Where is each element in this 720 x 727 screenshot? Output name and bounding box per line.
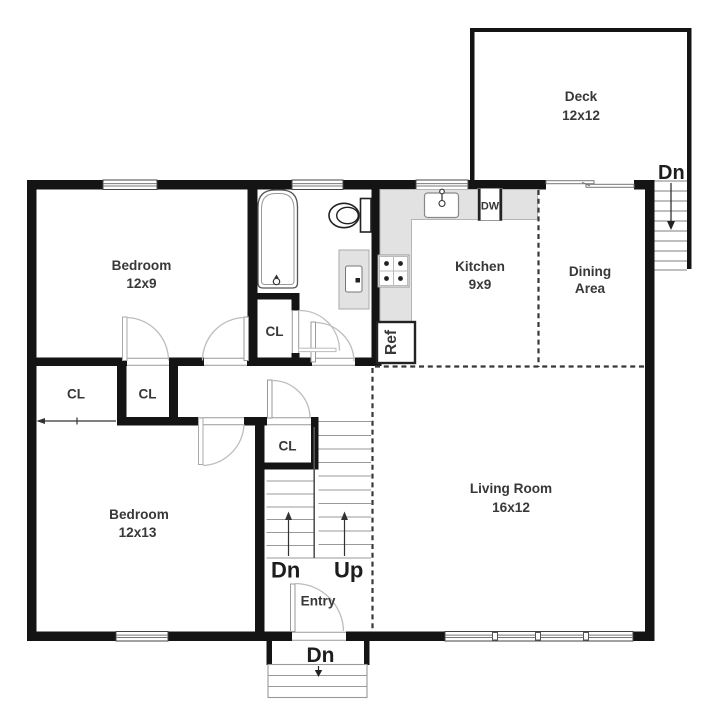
svg-text:9x9: 9x9: [469, 277, 492, 292]
svg-text:Deck: Deck: [565, 89, 598, 104]
svg-text:Ref: Ref: [383, 329, 400, 355]
svg-text:Living Room: Living Room: [470, 481, 552, 496]
svg-text:CL: CL: [279, 439, 297, 454]
svg-text:Dn: Dn: [271, 558, 300, 583]
svg-text:12x9: 12x9: [126, 276, 157, 291]
svg-text:Dn: Dn: [658, 162, 685, 184]
svg-text:Entry: Entry: [301, 594, 336, 609]
svg-text:CL: CL: [67, 387, 85, 402]
svg-text:Area: Area: [575, 281, 606, 296]
svg-text:DW: DW: [481, 201, 500, 213]
svg-text:CL: CL: [139, 387, 157, 402]
svg-text:16x12: 16x12: [492, 500, 530, 515]
svg-text:Bedroom: Bedroom: [112, 258, 172, 273]
svg-text:Dining: Dining: [569, 264, 611, 279]
svg-text:12x12: 12x12: [562, 108, 600, 123]
svg-text:Bedroom: Bedroom: [109, 507, 169, 522]
svg-text:Up: Up: [334, 558, 363, 583]
svg-text:12x13: 12x13: [119, 525, 157, 540]
svg-text:Dn: Dn: [307, 644, 335, 667]
svg-text:CL: CL: [266, 324, 284, 339]
svg-text:Kitchen: Kitchen: [455, 259, 505, 274]
